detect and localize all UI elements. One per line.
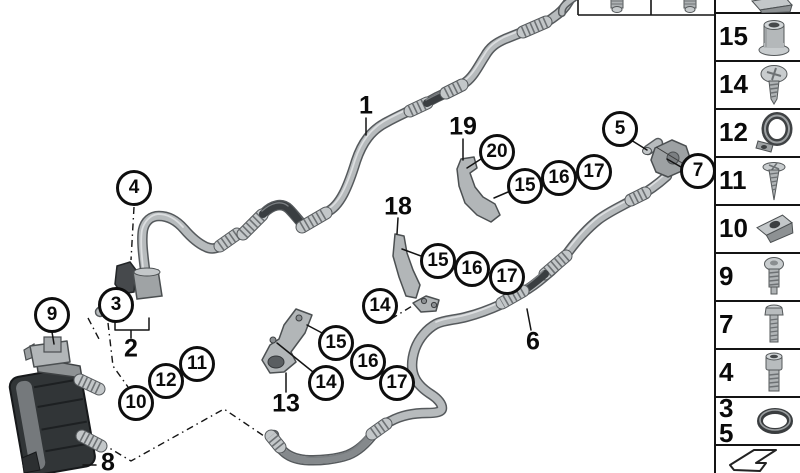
bracket-18 (393, 234, 420, 298)
parts-cell-7: 7 (716, 302, 800, 350)
o-ring-icon (752, 399, 796, 443)
socket-head-bolt-icon (752, 351, 796, 395)
clip-nut-icon (752, 207, 796, 251)
parts-column: 15 14 12 (714, 0, 800, 473)
callout-9[interactable]: 9 (34, 297, 70, 333)
bracket-14 (413, 296, 439, 312)
callout-15[interactable]: 15 (318, 325, 354, 361)
part-number: 9 (716, 265, 752, 288)
label-8[interactable]: 8 (101, 449, 115, 473)
label-2[interactable]: 2 (124, 335, 138, 364)
parts-cell-partial (716, 0, 800, 14)
callout-17[interactable]: 17 (379, 365, 415, 401)
connector-pipe (115, 214, 251, 299)
part-number: 15 (716, 25, 752, 48)
parts-cell-4: 4 (716, 350, 800, 398)
hex-bolt-icon (752, 303, 796, 347)
label-13[interactable]: 13 (272, 390, 300, 419)
label-18[interactable]: 18 (384, 193, 412, 222)
parts-cell-3-5: 3 5 (716, 398, 800, 446)
round-head-bolt-icon (752, 255, 796, 299)
parts-diagram-page: .pout{fill:none;stroke:#565a5d;stroke-wi… (0, 0, 800, 473)
callout-15[interactable]: 15 (507, 168, 543, 204)
label-19[interactable]: 19 (449, 113, 477, 142)
callout-16[interactable]: 16 (541, 160, 577, 196)
callout-11[interactable]: 11 (179, 346, 215, 382)
countersunk-screw-icon (752, 159, 796, 203)
part-number-3: 3 (719, 397, 752, 420)
callout-15[interactable]: 15 (420, 243, 456, 279)
parts-cell-10: 10 (716, 206, 800, 254)
parts-cell-9: 9 (716, 254, 800, 302)
callout-14[interactable]: 14 (362, 288, 398, 324)
callout-17[interactable]: 17 (576, 154, 612, 190)
part-number: 10 (716, 217, 752, 240)
label-6[interactable]: 6 (526, 328, 540, 357)
clip-nut-partial-icon (742, 0, 794, 13)
parts-cell-11: 11 (716, 158, 800, 206)
part-number: 12 (716, 121, 752, 144)
callout-16[interactable]: 16 (454, 251, 490, 287)
part-number: 11 (716, 169, 752, 192)
bracket-13 (262, 309, 312, 373)
parts-cell-15: 15 (716, 14, 800, 62)
callout-5[interactable]: 5 (602, 111, 638, 147)
pan-head-screw-icon (752, 63, 796, 107)
pipe-clamp-icon (752, 111, 796, 155)
callout-4[interactable]: 4 (116, 170, 152, 206)
parts-cell-12: 12 (716, 110, 800, 158)
grommet-sleeve-icon (752, 15, 796, 59)
parts-cell-14: 14 (716, 62, 800, 110)
callout-7[interactable]: 7 (680, 153, 716, 189)
screw-stud-icon (611, 0, 623, 13)
top-strip (578, 0, 716, 15)
callout-3[interactable]: 3 (98, 287, 134, 323)
part-number: 7 (716, 313, 752, 336)
callout-10[interactable]: 10 (118, 385, 154, 421)
parts-cell-continuation (716, 446, 800, 473)
callout-17[interactable]: 17 (489, 259, 525, 295)
part-number: 3 5 (716, 397, 752, 445)
callout-14[interactable]: 14 (308, 365, 344, 401)
label-1[interactable]: 1 (359, 92, 373, 121)
part-number-5: 5 (719, 422, 752, 445)
part-number: 14 (716, 73, 752, 96)
continuation-arrow-icon (726, 447, 792, 473)
part-number: 4 (716, 361, 752, 384)
screw-stud-icon (684, 0, 696, 13)
callout-20[interactable]: 20 (479, 134, 515, 170)
